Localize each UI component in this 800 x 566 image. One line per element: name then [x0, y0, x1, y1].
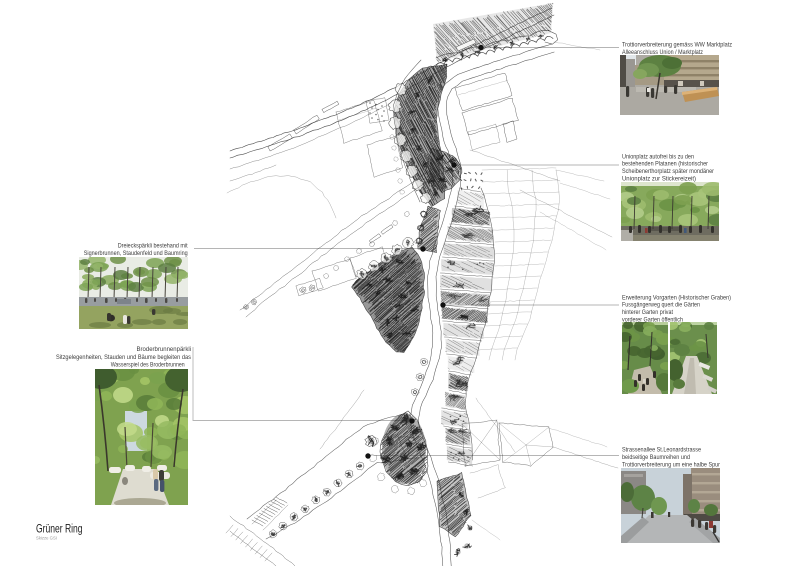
svg-text:Fussgängerweg quert die Gärten: Fussgängerweg quert die Gärten — [622, 302, 700, 309]
svg-text:beidseitige Baumreihen und: beidseitige Baumreihen und — [622, 454, 690, 461]
svg-text:Sitzgelegenheiten, Stauden und: Sitzgelegenheiten, Stauden und Bäume beg… — [56, 354, 191, 361]
svg-text:Erweiterung Vorgarten (Histori: Erweiterung Vorgarten (Historischer Grab… — [622, 294, 731, 301]
svg-text:Signerbrunnen, Staudenfeld und: Signerbrunnen, Staudenfeld und Baumring — [84, 250, 188, 257]
svg-text:Scheibenerthorplatz später mon: Scheibenerthorplatz später mondäner — [622, 168, 715, 175]
svg-text:Skizze GSI: Skizze GSI — [36, 536, 57, 542]
svg-text:Unionplatz zur Stickereizeit): Unionplatz zur Stickereizeit) — [622, 176, 696, 183]
svg-text:Grüner Ring: Grüner Ring — [36, 522, 83, 536]
svg-text:Broderbrunnenpärkli: Broderbrunnenpärkli — [137, 346, 192, 353]
svg-text:vorderer Garten öffentlich: vorderer Garten öffentlich — [622, 317, 683, 324]
svg-text:Wasserspiel des Broderbrunnen: Wasserspiel des Broderbrunnen — [111, 361, 185, 368]
svg-text:Trottiorverbreiterung um eine: Trottiorverbreiterung um eine halbe Spur — [622, 462, 721, 469]
svg-text:Strassenallee St.Leonardstrass: Strassenallee St.Leonardstrasse — [622, 447, 701, 454]
svg-text:Unionplatz autofrei bis zu den: Unionplatz autofrei bis zu den — [622, 153, 694, 160]
svg-text:Trottiorverbreiterung gemäss W: Trottiorverbreiterung gemäss WW Marktpla… — [622, 42, 732, 49]
svg-text:bestehenden Platanen (historis: bestehenden Platanen (historischer — [622, 161, 709, 168]
svg-text:Dreieckspärkli bestehand mit: Dreieckspärkli bestehand mit — [118, 243, 188, 250]
svg-text:hinterer Garten privat: hinterer Garten privat — [622, 309, 673, 316]
svg-text:Alleeanschluss Union / Marktpl: Alleeanschluss Union / Marktplatz — [622, 49, 703, 56]
